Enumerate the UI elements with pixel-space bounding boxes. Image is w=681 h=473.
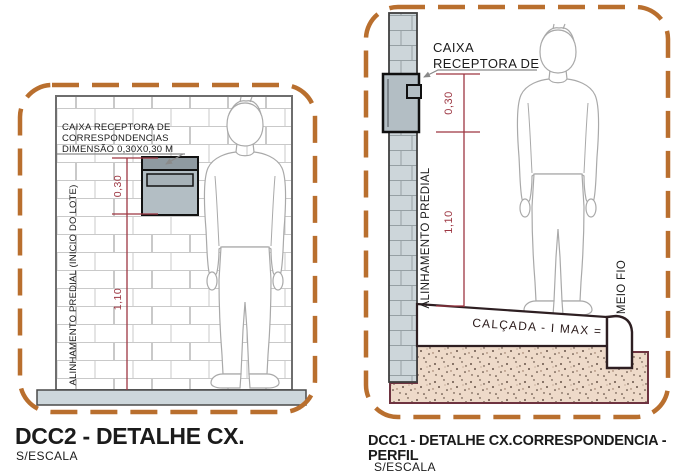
title-front: DCC2 - DETALHE CX. xyxy=(15,423,244,449)
panel-front-view: 0,30 1,10 CAIXA RECEPTORA DE CORRESPONDE… xyxy=(15,85,315,463)
alignment-label-front: ALINHAMENTO PREDIAL (INICIO DO LOTE) xyxy=(68,185,79,386)
mailbox-profile xyxy=(383,74,421,132)
scale-note-profile: S/ESCALA xyxy=(374,460,436,473)
curb xyxy=(607,316,632,368)
floor-slab xyxy=(37,390,306,405)
label-profile-line2: RECEPTORA DE xyxy=(433,56,539,71)
alignment-label-profile: ALINHAMENTO PREDIAL xyxy=(420,167,432,308)
dim-profile-mount-height: 1,10 xyxy=(443,210,455,233)
mailbox-label-profile: CAIXA RECEPTORA DE xyxy=(424,40,539,77)
mailbox-front xyxy=(142,157,198,215)
brick-wall-profile xyxy=(389,13,417,382)
label-front-line2: CORRESPONDENCIAS xyxy=(62,133,169,144)
dim-front-box-height: 0,30 xyxy=(112,175,124,197)
label-front-line1: CAIXA RECEPTORA DE xyxy=(62,122,171,133)
scale-note-front: S/ESCALA xyxy=(16,449,78,463)
dim-profile-box-height: 0,30 xyxy=(443,91,455,114)
title-profile-line1: DCC1 - DETALHE CX.CORRESPONDENCIA - xyxy=(368,433,667,449)
label-profile-line1: CAIXA xyxy=(433,40,474,55)
label-front-line3: DIMENSÃO 0,30X0,30 M xyxy=(62,144,173,155)
dim-front-mount-height: 1,10 xyxy=(112,288,124,310)
curb-label: MEIO FIO xyxy=(616,260,628,314)
panel-profile-view: CALÇADA - I MAX = MEIO FIO 0,30 1,10 CAI… xyxy=(366,7,668,473)
technical-drawing-sheet: 0,30 1,10 CAIXA RECEPTORA DE CORRESPONDE… xyxy=(0,0,681,473)
mailbox-detail-drawing: 0,30 1,10 CAIXA RECEPTORA DE CORRESPONDE… xyxy=(0,0,681,473)
